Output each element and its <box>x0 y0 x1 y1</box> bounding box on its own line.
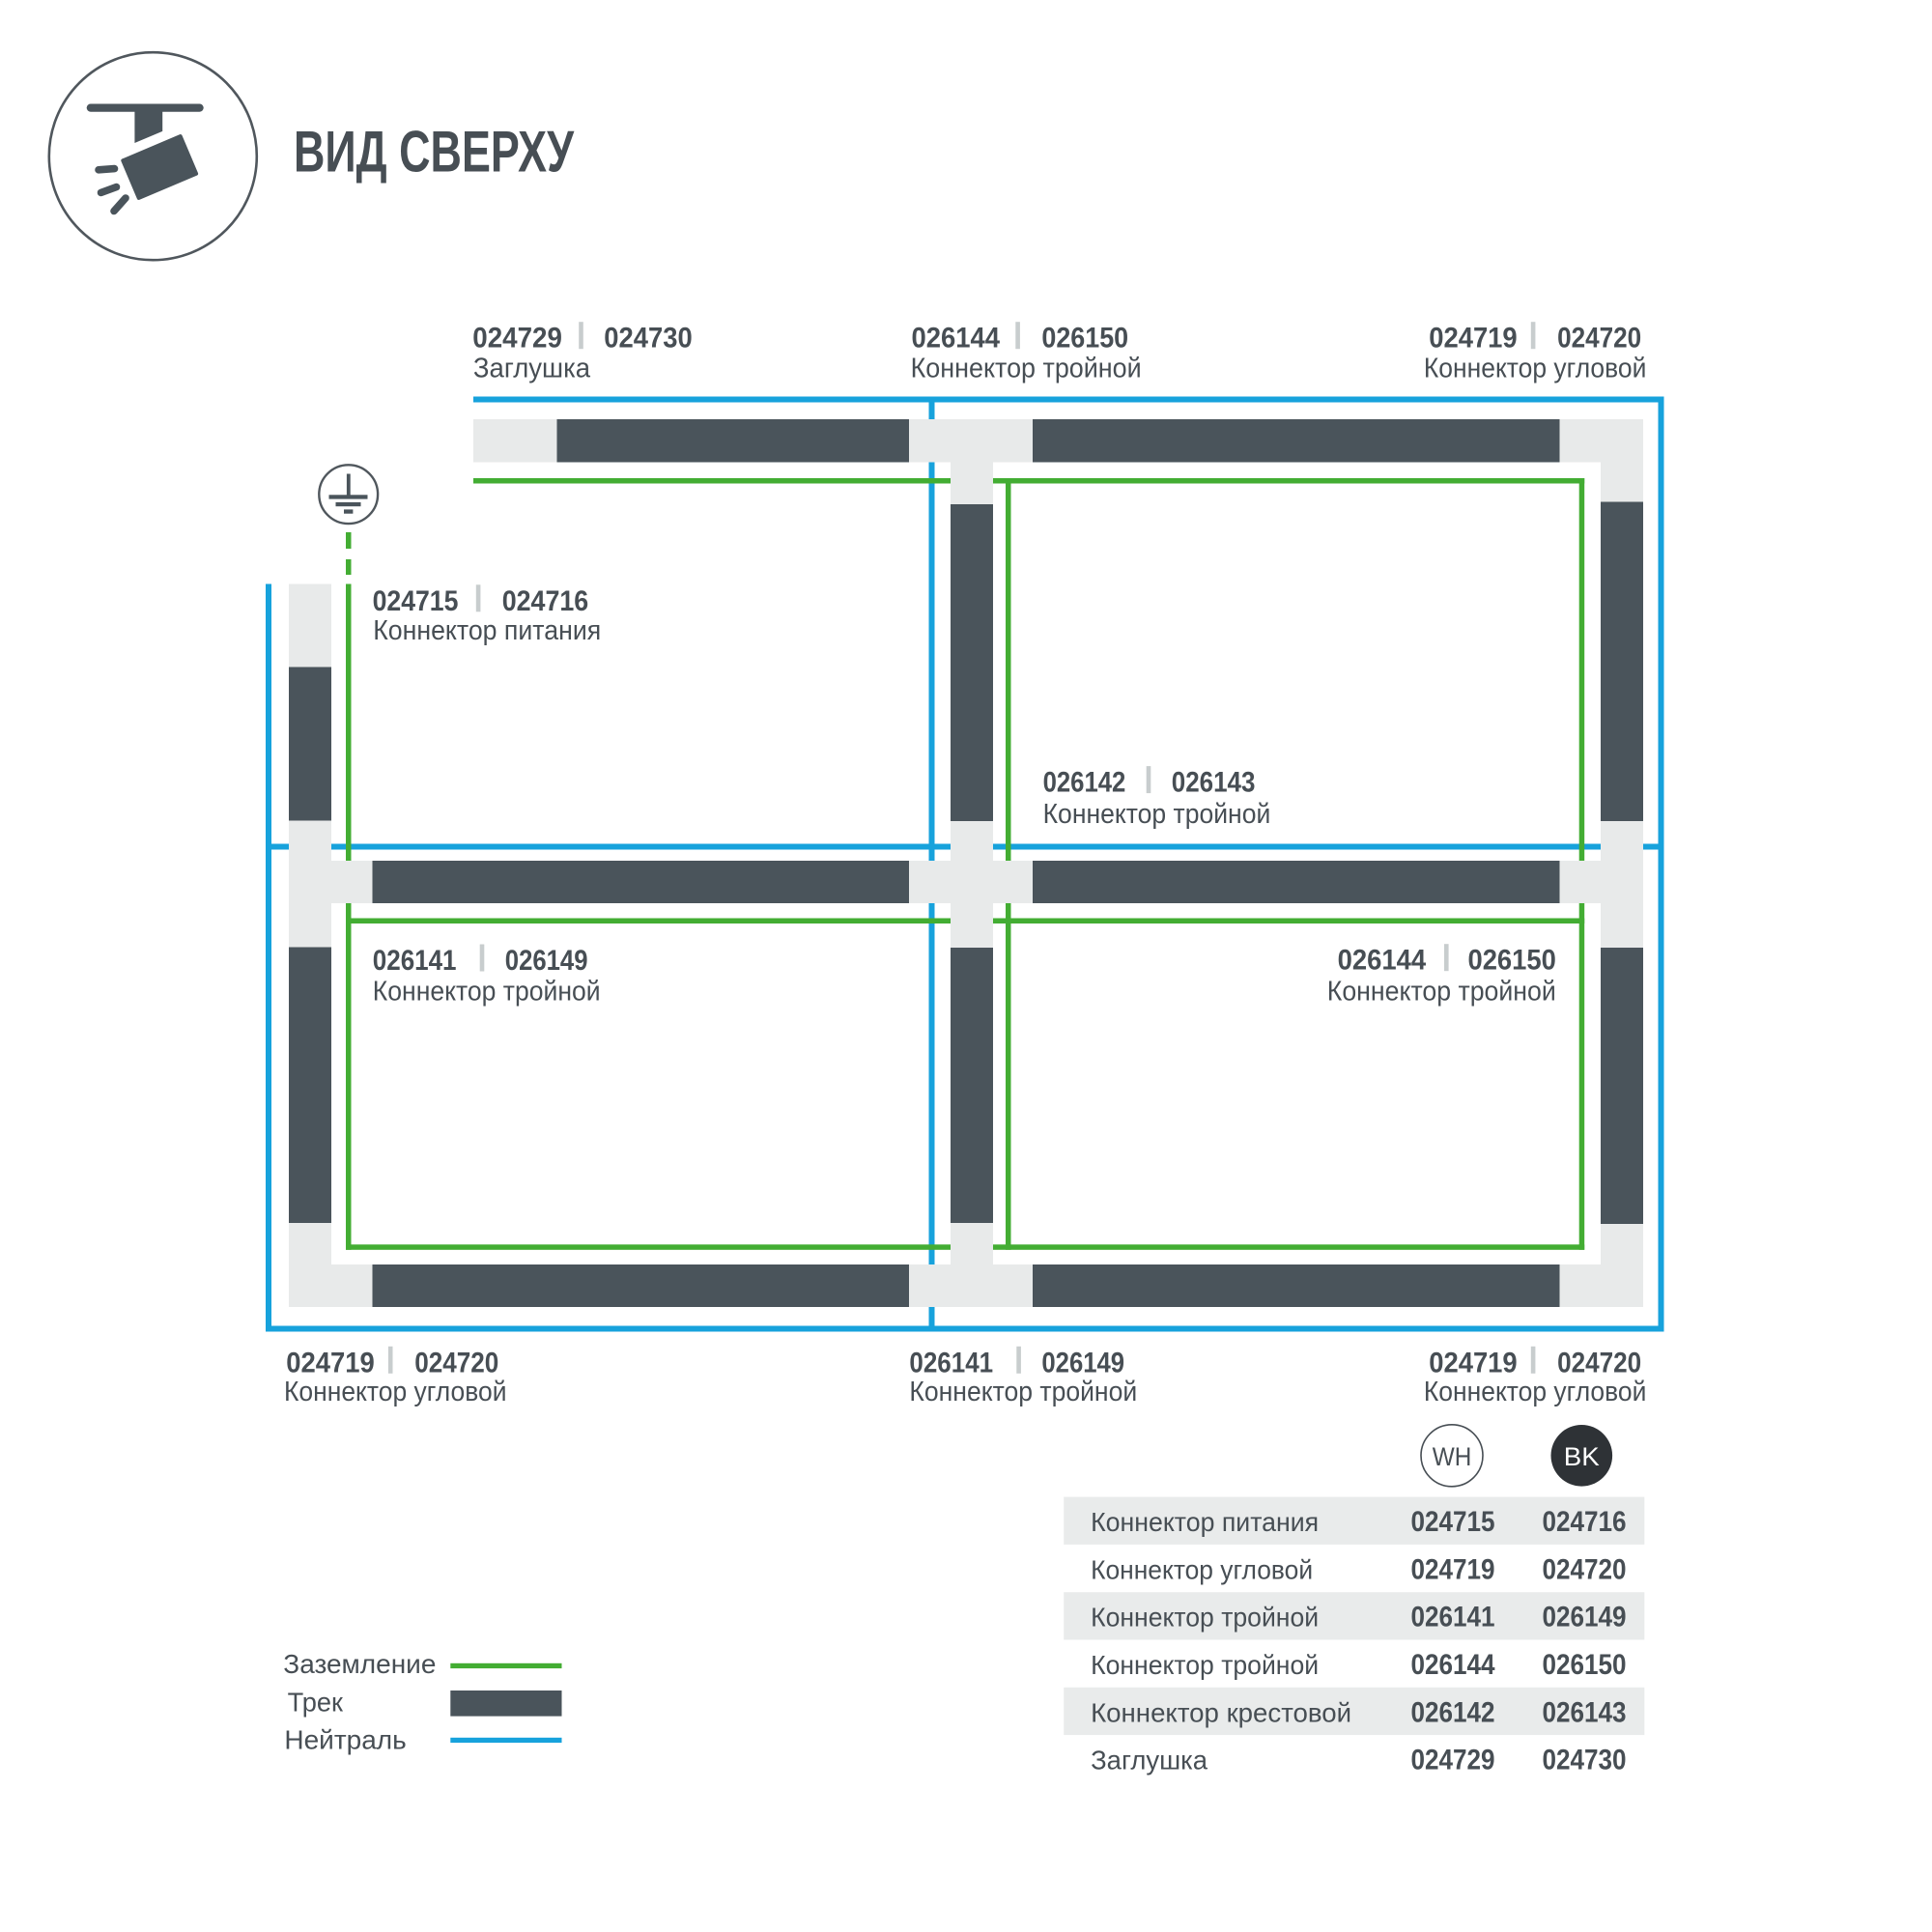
svg-text:026142: 026142 <box>1411 1696 1495 1728</box>
svg-text:026141: 026141 <box>909 1347 993 1378</box>
svg-text:026150: 026150 <box>1543 1649 1627 1681</box>
svg-text:WH: WH <box>1433 1442 1472 1471</box>
svg-text:Коннектор тройной: Коннектор тройной <box>1043 799 1271 830</box>
svg-text:Коннектор угловой: Коннектор угловой <box>284 1377 507 1407</box>
svg-text:024729: 024729 <box>1411 1745 1495 1776</box>
svg-text:024719: 024719 <box>1429 323 1518 355</box>
svg-text:026141: 026141 <box>373 945 457 977</box>
svg-text:Коннектор тройной: Коннектор тройной <box>911 354 1142 384</box>
svg-text:024719: 024719 <box>286 1347 375 1378</box>
svg-text:024720: 024720 <box>414 1347 498 1378</box>
svg-text:Коннектор тройной: Коннектор тройной <box>1327 977 1556 1008</box>
svg-text:024729: 024729 <box>472 323 562 355</box>
svg-text:Коннектор тройной: Коннектор тройной <box>909 1377 1137 1407</box>
svg-text:024730: 024730 <box>604 323 692 355</box>
svg-text:Коннектор питания: Коннектор питания <box>373 615 601 646</box>
svg-text:024720: 024720 <box>1557 1347 1641 1378</box>
svg-text:026149: 026149 <box>1041 1347 1124 1378</box>
svg-text:024720: 024720 <box>1543 1553 1627 1585</box>
svg-text:BK: BK <box>1564 1442 1600 1471</box>
svg-text:026144: 026144 <box>1411 1649 1495 1681</box>
svg-text:024715: 024715 <box>373 585 459 617</box>
svg-text:026149: 026149 <box>1543 1602 1627 1634</box>
svg-text:Коннектор тройной: Коннектор тройной <box>373 977 601 1008</box>
svg-text:024719: 024719 <box>1411 1553 1495 1585</box>
svg-text:Трек: Трек <box>288 1687 344 1717</box>
svg-text:024730: 024730 <box>1543 1745 1627 1776</box>
svg-text:Коннектор угловой: Коннектор угловой <box>1424 1377 1647 1407</box>
svg-text:024720: 024720 <box>1557 323 1641 355</box>
svg-text:026142: 026142 <box>1043 767 1126 799</box>
svg-text:026150: 026150 <box>1468 945 1556 977</box>
svg-text:026149: 026149 <box>505 945 588 977</box>
svg-text:Коннектор тройной: Коннектор тройной <box>1091 1650 1319 1680</box>
svg-text:026144: 026144 <box>1338 945 1427 977</box>
svg-text:Коннектор питания: Коннектор питания <box>1091 1507 1319 1537</box>
svg-text:024719: 024719 <box>1429 1347 1518 1378</box>
svg-text:Заглушка: Заглушка <box>473 354 590 384</box>
svg-text:026143: 026143 <box>1172 767 1256 799</box>
svg-text:026143: 026143 <box>1543 1696 1627 1728</box>
svg-text:ВИД СВЕРХУ: ВИД СВЕРХУ <box>294 119 574 184</box>
svg-text:024715: 024715 <box>1411 1506 1495 1538</box>
svg-text:026144: 026144 <box>912 323 1001 355</box>
svg-text:024716: 024716 <box>1543 1506 1627 1538</box>
svg-text:Коннектор угловой: Коннектор угловой <box>1424 354 1647 384</box>
svg-text:Нейтраль: Нейтраль <box>284 1725 406 1755</box>
svg-text:026150: 026150 <box>1041 323 1128 355</box>
svg-text:Коннектор тройной: Коннектор тройной <box>1091 1603 1319 1633</box>
svg-text:Заземление: Заземление <box>283 1649 436 1679</box>
svg-text:Коннектор угловой: Коннектор угловой <box>1091 1554 1313 1584</box>
svg-text:026141: 026141 <box>1411 1602 1495 1634</box>
svg-text:Заглушка: Заглушка <box>1091 1746 1207 1776</box>
svg-text:Коннектор крестовой: Коннектор крестовой <box>1091 1697 1351 1727</box>
svg-text:024716: 024716 <box>502 585 589 617</box>
